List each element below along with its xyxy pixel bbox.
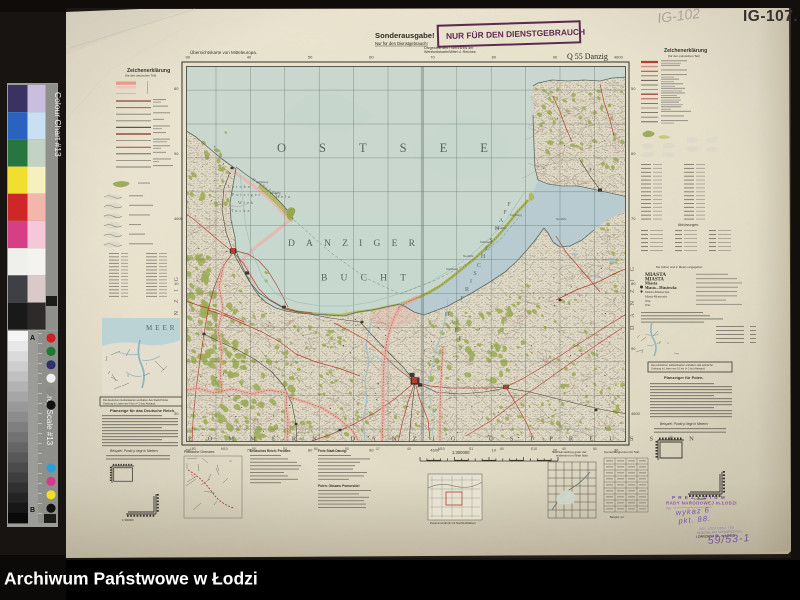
svg-text:90: 90 <box>252 447 256 451</box>
svg-text:60: 60 <box>369 55 374 60</box>
svg-text:Kahlberg: Kahlberg <box>510 213 522 217</box>
svg-text:A: A <box>30 335 35 342</box>
svg-text:Neufähr: Neufähr <box>496 226 507 230</box>
svg-text:1:300000: 1:300000 <box>452 450 470 455</box>
svg-text:90: 90 <box>174 151 179 156</box>
svg-text:10: 10 <box>492 448 497 453</box>
svg-text:RADY NARODOWEJ m.ŁODZI: RADY NARODOWEJ m.ŁODZI <box>666 501 737 506</box>
svg-text:Abkürzungen:: Abkürzungen: <box>678 223 699 227</box>
svg-text:M10: M10 <box>221 447 228 451</box>
svg-text:80: 80 <box>174 86 179 91</box>
svg-text:Die Höhen sind in Metern angeg: Die Höhen sind in Metern angegeben <box>656 265 703 269</box>
svg-text:Ordnung in Listen von 10 km (=: Ordnung in Listen von 10 km (= 2 km) Abs… <box>651 367 706 371</box>
svg-text:70: 70 <box>430 55 435 60</box>
svg-text:Kahlberg: Kahlberg <box>446 267 458 271</box>
svg-text:4600: 4600 <box>614 55 624 60</box>
svg-text:40: 40 <box>247 55 252 60</box>
svg-text:E: E <box>485 246 489 252</box>
svg-text:17: 17 <box>376 447 380 451</box>
svg-text:Tucka: Tucka <box>231 208 251 213</box>
svg-text:A: A <box>450 320 455 326</box>
svg-text:R: R <box>465 287 469 293</box>
svg-text:Kahlberg: Kahlberg <box>256 180 268 184</box>
svg-text:(für den polnischen Teil): (für den polnischen Teil) <box>668 54 700 58</box>
svg-text:..... , . ..: ..... , . .. <box>704 520 714 525</box>
svg-text:S1: S1 <box>469 447 473 451</box>
svg-text:IG-107.: IG-107. <box>743 8 798 25</box>
svg-text:(für den deutschen Teil): (für den deutschen Teil) <box>125 74 156 78</box>
svg-text:Neufähr: Neufähr <box>556 217 567 221</box>
svg-text:L80: L80 <box>190 447 196 451</box>
svg-text:90: 90 <box>631 346 636 351</box>
svg-text:Miasta: Miasta <box>645 281 658 286</box>
svg-text:S1: S1 <box>283 447 287 451</box>
svg-text:Freie Stadt Danzig:: Freie Stadt Danzig: <box>318 449 347 453</box>
svg-text:Grey Scale #13: Grey Scale #13 <box>45 390 54 446</box>
svg-text:80: 80 <box>308 448 313 453</box>
svg-text:H: H <box>481 254 486 260</box>
svg-text:E10: E10 <box>531 447 537 451</box>
svg-text:50: 50 <box>631 86 636 91</box>
svg-text:Nur für den Dienstgebrauch!: Nur für den Dienstgebrauch! <box>375 41 428 46</box>
svg-text:Planzeige für das Deutsche Rei: Planzeige für das Deutsche Reich. <box>110 408 175 413</box>
svg-text:DANZIG: DANZIG <box>630 259 636 330</box>
svg-text:Wehrkreiskarte/Mittel d. Reich: Wehrkreiskarte/Mittel d. Reiches <box>424 50 476 54</box>
svg-text:Ordnung in Listen von 6 km (=: Ordnung in Listen von 6 km (= 2 km) Abst… <box>103 401 156 405</box>
svg-text:BUCHT: BUCHT <box>321 274 419 284</box>
svg-text:Wiek: Wiek <box>238 200 255 205</box>
svg-text:Putziger: Putziger <box>232 192 262 197</box>
svg-text:Latoka: Latoka <box>228 184 252 189</box>
svg-text:60: 60 <box>500 447 504 451</box>
svg-text:40: 40 <box>407 447 411 451</box>
svg-text:Kahlberg: Kahlberg <box>480 240 492 244</box>
svg-text:Miasta-Miasteczko: Miasta-Miasteczko <box>645 295 668 299</box>
svg-text:40: 40 <box>562 447 566 451</box>
svg-text:Neufähr: Neufähr <box>270 191 281 195</box>
svg-text:DANZIGER: DANZIGER <box>288 239 426 249</box>
svg-text:Polen: Obszaru Pomorskiei: Polen: Obszaru Pomorskiei <box>318 484 360 488</box>
svg-text:Archiwum Państwowe w Łodzi: Archiwum Państwowe w Łodzi <box>4 569 258 589</box>
svg-text:Übersichtskarte von Mitteleuro: Übersichtskarte von Mitteleuropa. <box>190 49 257 55</box>
svg-text:B: B <box>30 507 35 514</box>
svg-text:Beispiel: Punkt p liegt in Met: Beispiel: Punkt p liegt in Metern: <box>660 422 708 426</box>
svg-text:90: 90 <box>186 55 191 60</box>
svg-text:Wy: Wy <box>666 507 671 511</box>
svg-text:A: A <box>499 218 504 224</box>
svg-text:Zusammendruck mit Nachbarblätt: Zusammendruck mit Nachbarblättern <box>430 521 476 525</box>
svg-text:90: 90 <box>553 55 558 60</box>
svg-text:Wsie: Wsie <box>645 304 651 307</box>
svg-text:4600: 4600 <box>631 411 641 416</box>
svg-text:Die polnischen Gebietskarten e: Die polnischen Gebietskarten enthalten d… <box>651 363 713 367</box>
svg-text:60: 60 <box>593 447 597 451</box>
svg-text:C: C <box>477 263 481 269</box>
svg-text:M10: M10 <box>438 447 445 451</box>
svg-text:H: H <box>445 312 450 318</box>
svg-text:POMMERN DANZIG OSTPREUSSEN: POMMERN DANZIG OSTPREUSSEN <box>188 436 710 443</box>
svg-text:Beispiel: Punkt p liegt in Met: Beispiel: Punkt p liegt in Metern: <box>110 449 158 453</box>
svg-text:S: S <box>473 271 476 277</box>
svg-text:90: 90 <box>345 447 349 451</box>
svg-text:60: 60 <box>631 151 636 156</box>
svg-text:Colour Chart #13: Colour Chart #13 <box>53 92 63 157</box>
svg-text:Planzeiger für Polen.: Planzeiger für Polen. <box>664 375 704 380</box>
svg-text:I: I <box>470 279 472 285</box>
svg-text:entfernten im Witte blatt: entfernten im Witte blatt <box>556 454 588 458</box>
svg-text:MEER: MEER <box>146 324 177 332</box>
svg-text:Beispiel. q=r: Beispiel. q=r <box>610 515 624 519</box>
svg-text:OSTSEE: OSTSEE <box>277 141 521 155</box>
svg-text:Die deutschen Gebietskarten en: Die deutschen Gebietskarten enthalten da… <box>103 398 168 402</box>
svg-text:1:300000: 1:300000 <box>122 518 134 522</box>
svg-text:Neufähr: Neufähr <box>463 254 474 258</box>
svg-text:4600: 4600 <box>174 216 184 221</box>
svg-text:Sonderausgabe!: Sonderausgabe! <box>375 31 435 40</box>
svg-text:PREZYDIUM: PREZYDIUM <box>672 495 728 500</box>
svg-text:50: 50 <box>308 55 313 60</box>
svg-text:Gemeindegrenzen für Soll:: Gemeindegrenzen für Soll: <box>604 450 640 454</box>
svg-text:Politische Grenzen:: Politische Grenzen: <box>184 450 215 454</box>
svg-text:80: 80 <box>492 55 497 60</box>
svg-text:90: 90 <box>369 448 374 453</box>
svg-text:70: 70 <box>631 216 636 221</box>
svg-text:60: 60 <box>314 447 318 451</box>
svg-text:Q 55 Danzig: Q 55 Danzig <box>567 52 608 61</box>
svg-text:Wsie: Wsie <box>645 300 651 303</box>
